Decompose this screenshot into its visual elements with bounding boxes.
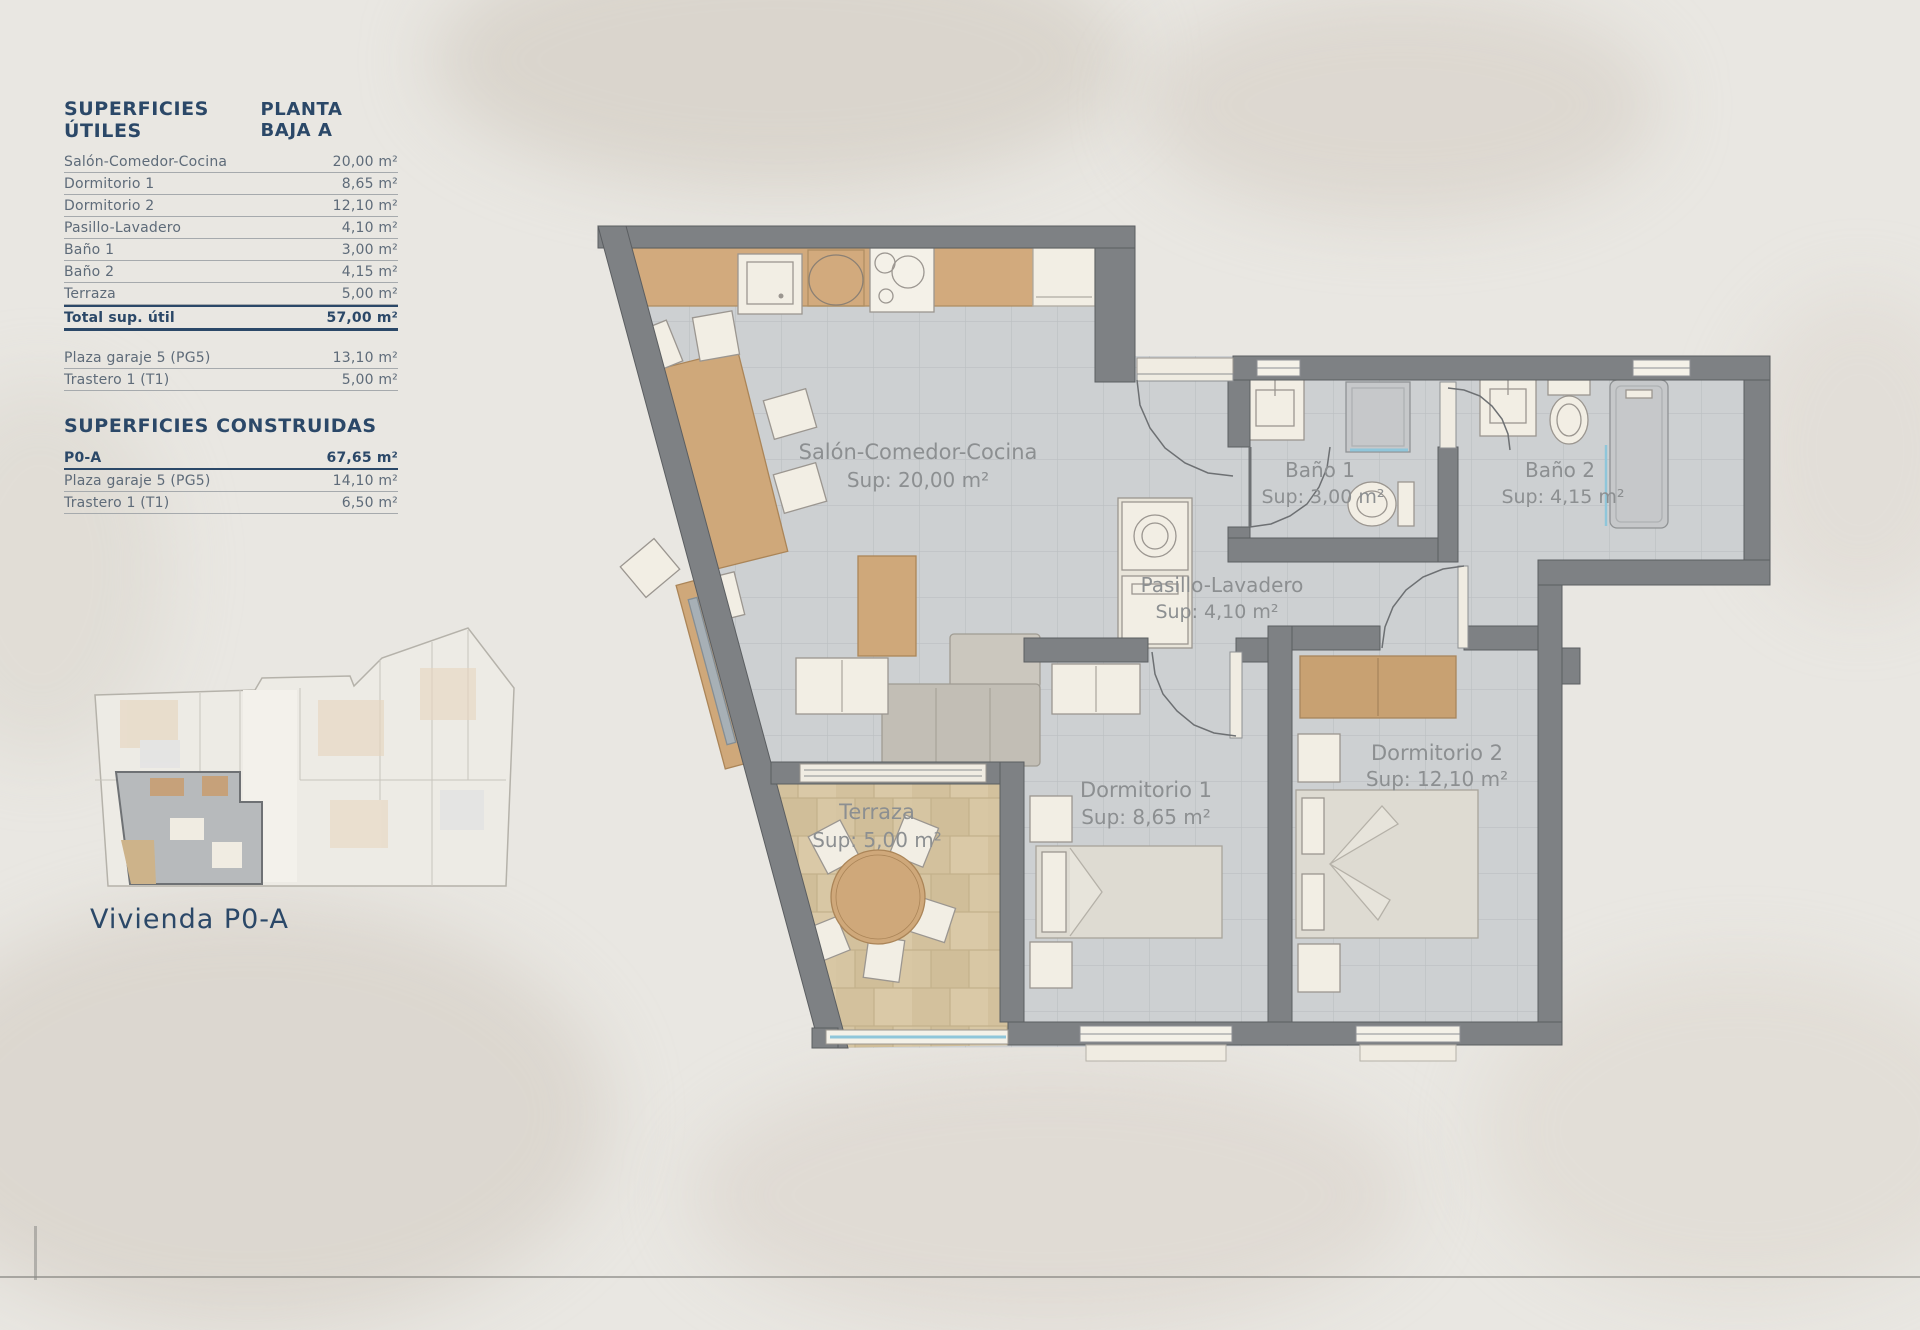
label-terraza: Terraza bbox=[838, 800, 915, 824]
shower-tray bbox=[1346, 382, 1410, 452]
label-terraza-sup: Sup: 5,00 m² bbox=[812, 828, 942, 852]
mini-key-plan: Vivienda P0-A bbox=[90, 628, 514, 935]
label-bano2-sup: Sup: 4,15 m² bbox=[1501, 486, 1624, 508]
label-bano1: Baño 1 bbox=[1285, 458, 1355, 482]
cooktop bbox=[870, 248, 934, 312]
label-dorm1: Dormitorio 1 bbox=[1080, 778, 1212, 802]
kitchen-sink bbox=[738, 254, 802, 314]
label-bano2: Baño 2 bbox=[1525, 458, 1595, 482]
label-living-sup: Sup: 20,00 m² bbox=[847, 468, 989, 492]
sheet-bottom-rule bbox=[0, 1276, 1920, 1278]
mini-plan-caption: Vivienda P0-A bbox=[90, 904, 289, 935]
label-dorm2-sup: Sup: 12,10 m² bbox=[1366, 767, 1508, 791]
terrace-railing bbox=[826, 1030, 1008, 1044]
round-table bbox=[831, 850, 925, 944]
main-plan: Salón-Comedor-Cocina Sup: 20,00 m² Baño … bbox=[598, 226, 1770, 1061]
label-bano1-sup: Sup: 3,00 m² bbox=[1261, 486, 1384, 508]
floorplan-sheet: { "panel": { "utiles": { "title": "SUPER… bbox=[0, 0, 1920, 1280]
coffee-table bbox=[858, 556, 916, 656]
label-pasillo: Pasillo-Lavadero bbox=[1141, 573, 1304, 597]
sheet-corner-mark bbox=[34, 1226, 37, 1280]
label-pasillo-sup: Sup: 4,10 m² bbox=[1155, 601, 1278, 623]
living-cabinet bbox=[796, 658, 888, 714]
single-bed bbox=[1036, 846, 1222, 938]
kitchen-counter bbox=[622, 248, 1095, 314]
terrace-sliding-door bbox=[800, 764, 986, 782]
toilet-2 bbox=[1548, 380, 1590, 444]
label-dorm1-sup: Sup: 8,65 m² bbox=[1081, 805, 1211, 829]
label-living: Salón-Comedor-Cocina bbox=[799, 440, 1038, 464]
label-dorm2: Dormitorio 2 bbox=[1371, 741, 1503, 765]
double-bed bbox=[1296, 790, 1478, 938]
floor-plan-drawing: Vivienda P0-A bbox=[0, 0, 1920, 1280]
